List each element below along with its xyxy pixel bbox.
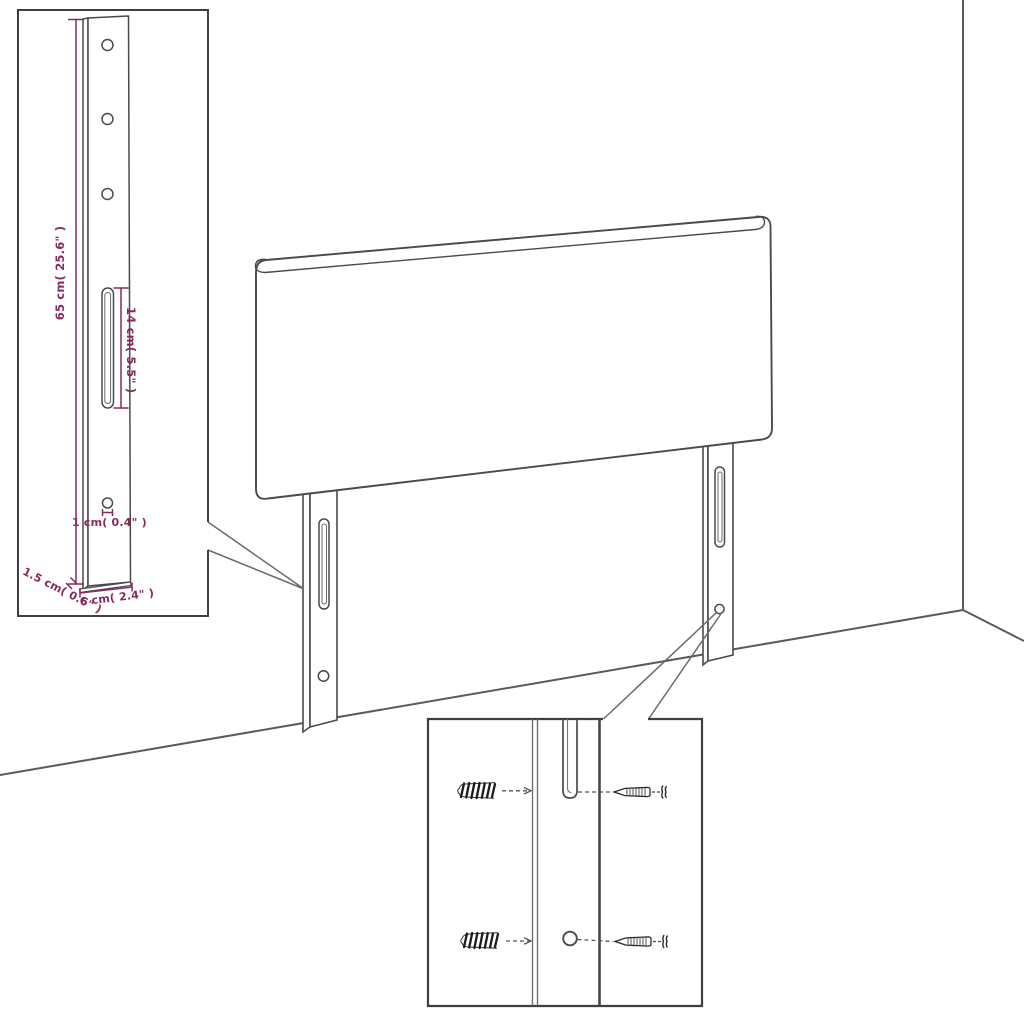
left-leg-side-face	[303, 469, 310, 732]
product-dimension-illustration: 65 cm( 25.6" ) 14 cm( 5.5" ) 1 cm( 0.4" …	[0, 0, 1024, 1024]
inset-leg-slot	[102, 288, 114, 408]
headboard-panel	[255, 216, 772, 498]
left-leg-slot	[319, 519, 329, 609]
line-art	[0, 0, 1024, 1024]
hardware-detail-inset	[428, 719, 702, 1006]
dimension-label-height: 65 cm( 25.6" )	[53, 217, 67, 329]
right-leg-slot	[715, 467, 725, 547]
right-leg-hole	[715, 604, 724, 613]
callout-lines-left	[208, 522, 304, 589]
left-leg-hole	[318, 671, 328, 681]
headboard-face	[256, 217, 772, 499]
hardware-hole	[563, 932, 577, 946]
inset-leg-hole-3	[102, 189, 113, 200]
hardware-inset-background	[428, 719, 702, 1006]
dimension-label-hole: 1 cm( 0.4" )	[72, 516, 146, 530]
dimension-label-slot: 14 cm( 5.5" )	[124, 307, 138, 393]
inset-leg-hole-2	[102, 114, 113, 125]
right-mounting-leg	[703, 436, 733, 665]
inset-leg-bottom-hole	[103, 498, 113, 508]
inset-leg-hole-1	[102, 40, 113, 51]
left-mounting-leg	[303, 466, 337, 732]
